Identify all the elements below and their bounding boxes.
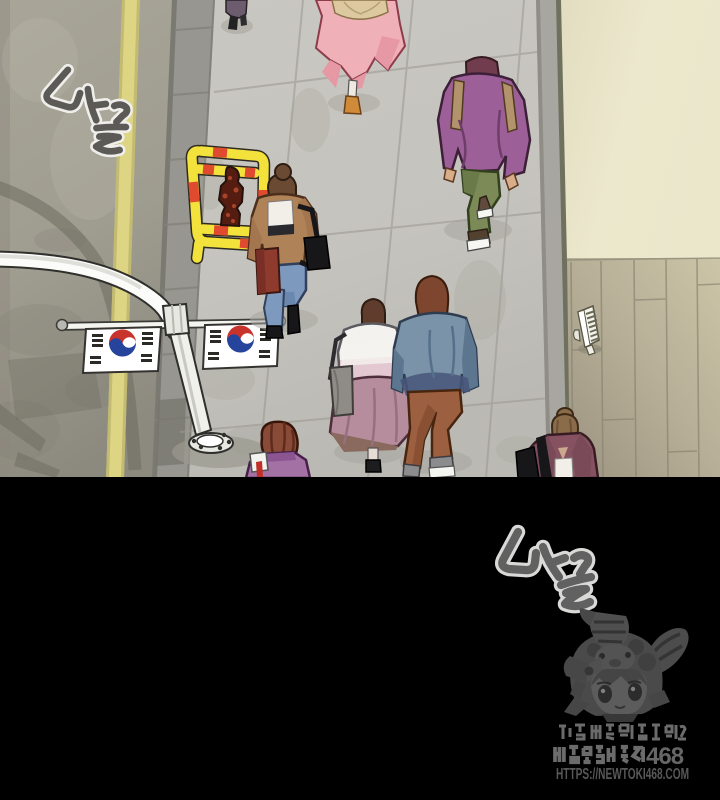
svg-text:HTTPS://NEWTOKI468.COM: HTTPS://NEWTOKI468.COM (556, 766, 689, 783)
